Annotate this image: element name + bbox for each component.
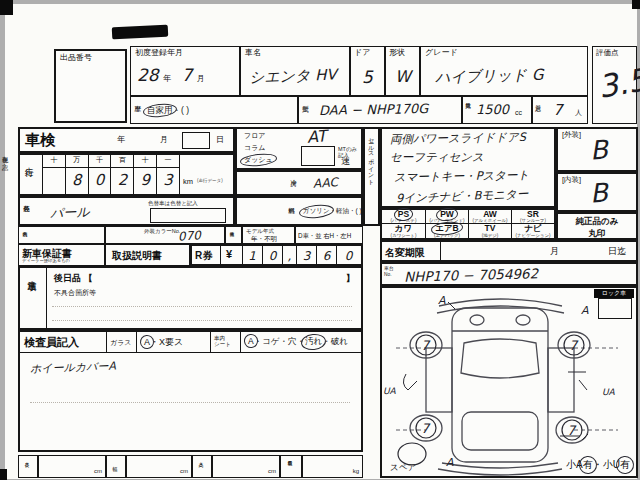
shaken-day-box [182,132,210,149]
defect-label: 不具合箇所等 [54,288,96,298]
equipment-code: PW [440,210,454,219]
equipment-code: SR [527,210,539,219]
bottom-right-note: 小A有・小U有 [566,458,630,472]
dcar-label: D車・並 右H・左H [298,232,351,241]
equipment-sub: (地デジ) [469,234,511,239]
reg-month-value: 7 [182,65,193,85]
equipment-cell: PW(パワーウィンド) [425,210,468,223]
equipment-sub: (エアバッグ) [426,234,468,239]
equipment-cell: カワ(カワシート) [382,224,425,238]
inspection-row: 車検 年 月 日 [18,127,235,153]
first-registration-cell: 初度登録年月 28 年 7 月 [130,46,240,96]
fuel-cell: 燃料 ガソリン・軽油・( ) [235,196,363,226]
later-items-label: 後日品 【 [54,272,93,285]
score-label: 評価点 [596,49,633,57]
grade-label: グレード [425,49,583,58]
seat-label: 車内シート [214,335,240,348]
repaint-note: 色替車は色替と記入 [148,200,198,206]
shape-cell: 形状 W [385,46,420,96]
model-year-value: 年・不明 [251,235,277,244]
mileage-row: 走行 十 万8 千0 百2 十9 一3 km (走行データ) [18,153,235,196]
model-year-cell: モデル年式 年・不明 [242,226,295,244]
lock-car-label: ロック車 [594,289,634,298]
grade-cell: グレード ハイブリッド G [420,46,588,96]
score-value: 3.5 [595,61,640,105]
small-u-circled: 有 [620,458,630,472]
auction-number-label: 出品番号 [60,54,121,63]
manual-label: 取扱説明書 [112,249,162,263]
inspector-note: ホイールカバーA [30,359,116,377]
dirty-circled: 汚れ [305,336,322,348]
wheel-cap-mark: 7 [421,338,431,353]
model-code-label: 型式 [302,100,309,102]
fuel-circled: ガソリン [303,207,330,216]
sales-point-label: セールスポイント [368,134,374,182]
auction-sheet-scan: 現在色を記入→ 出品番号 初度登録年月 28 年 7 月 車名 シエンタ HV … [0,0,640,480]
score-box: 評価点 3.5 [592,46,637,124]
inspector-section: 検査員記入 ガラス A・X要ス 車内シート A・コゲ・穴・汚れ・破れ ホイールカ… [18,330,363,452]
shape-label: 形状 [389,49,416,58]
door-label: ドア [354,49,381,58]
sales-line: 9インチナビ・Bモニター [396,187,529,207]
genuine-parts-line1: 純正品のみ [558,216,636,228]
diagram-mark: UA [383,386,397,396]
rticket-label: R券 [195,249,212,263]
spare-label: スペア [390,462,416,474]
mt-entry-box [301,146,335,166]
capacity-cell: 定員 7 人 [532,96,588,124]
capacity-value: 7 [553,101,563,119]
dash-circled: ダッシュ [244,156,273,164]
seat-mark-circled: A [248,336,254,346]
interior-color-cell: 内装色 [18,226,105,244]
first-registration-label: 初度登録年月 [135,49,235,58]
history-cell: 車歴 自家用・( ) [130,96,298,124]
wheel-cap-mark: 7 [421,421,431,436]
equipment-code: カワ [395,224,412,233]
door-cell: ドア 5 [350,46,385,96]
history-label: 車歴 [134,100,141,102]
exterior-color-value: パール [50,203,90,223]
glass-mark-circled: A [144,337,150,347]
model-code-value: DAA − NHP170G [319,101,429,118]
sales-points: 両側パワースライドドアS セーフティセンス スマートキー・Pスタート 9インチナ… [380,127,556,208]
aircon-value: AAC [313,175,339,191]
repaint-box [150,208,226,223]
exterior-grade-value: B [589,134,609,165]
interior-grade-box: [内装] B [556,172,638,212]
length-label: 長さ [24,458,29,464]
diagram-mark: A [438,294,446,307]
mileage-unit: km [183,177,193,186]
chassis-number-row: 車台No. NHP170 − 7054962 [380,262,638,286]
door-value: 5 [362,67,373,87]
small-a-circled: 有 [583,458,593,472]
auction-number-box: 出品番号 [54,49,127,123]
mileage-grid: 十 万8 千0 百2 十9 一3 [42,155,180,195]
equipment-code: PS [398,210,409,219]
name-change-label: 名変期限 [385,246,425,260]
equipment-grid: PS(パワーステ) PW(パワーウィンド) AW(アルミホイール) SR(サンル… [380,208,556,240]
manual-cell: 取扱説明書 [105,244,190,266]
yen-sign: ¥ [226,248,232,260]
diagram-mark: A [446,456,454,469]
speed-label: 速 [341,157,350,167]
sales-line: セーフティセンス [390,150,484,165]
model-code-cell: 型式 DAA − NHP170G [298,96,462,124]
car-name-value: シエンタ HV [249,65,337,87]
warranty-cell: 新車保証書 ディーラー捺印あるもの [18,244,105,266]
car-diagram: 7 7 7 7 A A UA UA A ロック車 スペア 小A有・小U有 [380,286,638,478]
chassis-label: 車台No. [384,266,394,277]
chassis-value: NHP170 − 7054962 [404,265,539,285]
displacement-value: 1500 [476,102,509,117]
mileage-label: 走行 [24,160,33,162]
reg-year-value: 28 [137,65,159,85]
diagram-mark: UA [602,387,616,397]
model-year-label: モデル年式 [246,228,274,234]
equipment-cell: ナビ(ナビゲーション) [511,224,554,238]
scan-artifact [0,469,7,480]
interior-grade-value: B [589,177,609,208]
genuine-parts-line2: 丸印 [558,228,636,240]
history-usage-circled: 自家用 [147,106,173,115]
name-change-row: 名変期限 月 日迄 [380,240,638,262]
color-number-value: 070 [178,228,202,244]
lock-car-box [598,298,632,319]
equipment-cell: TV(地デジ) [468,224,511,238]
exterior-color-row: 外装色 パール 色替車は色替と記入 [18,196,235,226]
equipment-code: エアB [435,224,459,233]
car-name-label: 車名 [245,49,345,58]
displacement-cell: 排気量 1500 cc [462,96,532,124]
equipment-code: AW [483,210,497,219]
sales-point-strip: セールスポイント [363,127,380,226]
color-number-label: 外装カラーNo. [144,228,180,234]
interior-grade-label: [内装] [562,176,581,184]
exterior-grade-box: [外装] B [556,127,638,172]
equipment-cell: AW(アルミホイール) [468,210,511,223]
diagram-mark: A [581,304,589,317]
mileage-unit-note: (走行データ) [197,178,223,183]
warranty-sub: ディーラー捺印あるもの [22,259,70,264]
equipment-sub: (ナビゲーション) [512,234,554,239]
equipment-cell: PS(パワーステ) [382,210,425,223]
dcar-cell: D車・並 右H・左H [295,226,363,244]
exterior-grade-label: [外装] [562,131,581,139]
shaken-label: 車検 [25,131,55,150]
equipment-cell: SR(サンルーフ) [511,210,554,223]
scan-artifact [0,0,13,15]
rticket-cell: R券 ¥ 1 0 , 3 6 0 [190,244,363,266]
wheel-cap-mark: 7 [569,338,579,353]
inspector-label: 検査員記入 [24,335,79,350]
transmission-value: AT [306,126,327,146]
notes-section: 注意事項 後日品 【 】 不具合箇所等 [18,266,363,330]
equipment-code: TV [485,224,496,233]
shift-position-cell: フロア コラム ダッシュ AT MTのみ記入 速 [235,127,363,170]
height-label: 高さ [198,458,203,464]
sales-line: 両側パワースライドドアS [390,130,526,147]
color-number-cell: 外装カラーNo. 070 [105,226,225,244]
import-cell: 輸入車 [225,226,242,244]
shape-value: W [395,67,411,86]
dimensions-row: 長さ cm 幅 cm 高さ cm 積載量 kg [18,455,363,478]
grade-value: ハイブリッド G [435,66,544,88]
equipment-code: ナビ [524,224,541,233]
glass-label: ガラス [110,338,132,348]
side-note: 現在色を記入→ [2,152,8,165]
car-name-cell: 車名 シエンタ HV [240,46,350,96]
notes-label: 注意事項 [27,273,36,277]
genuine-parts-note: 純正品のみ 丸印 [556,212,638,240]
scan-artifact [632,0,640,9]
aircon-cell: 冷房 AAC [235,170,363,196]
equipment-cell: エアB(エアバッグ) [425,224,468,238]
sales-line: スマートキー・Pスタート [394,168,530,185]
equipment-sub: (カワシート) [382,234,425,239]
